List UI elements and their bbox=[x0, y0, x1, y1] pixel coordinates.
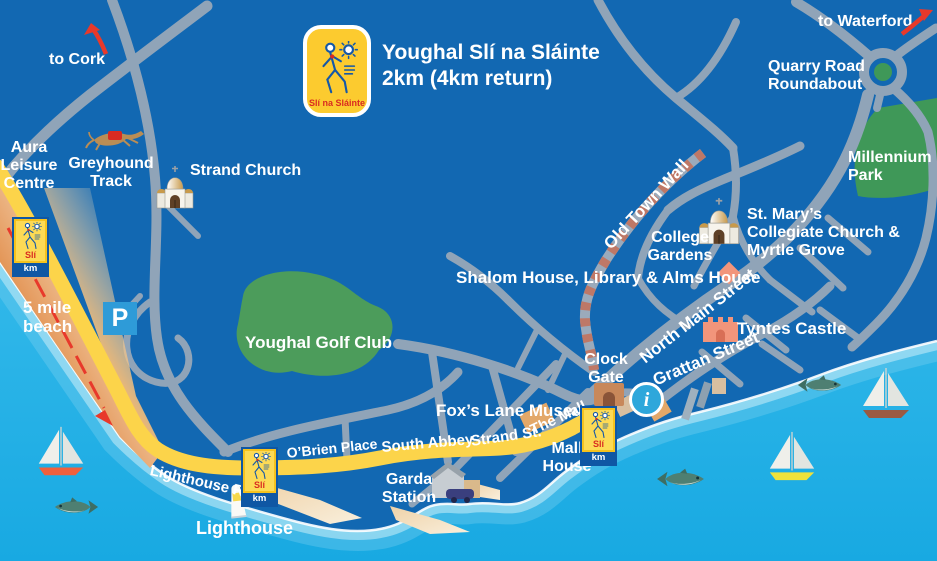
info-icon: i bbox=[629, 382, 664, 417]
map-title-line1: Youghal Slí na Sláinte bbox=[382, 40, 600, 66]
logo-brand-text: Slí na Sláinte bbox=[309, 98, 365, 108]
to-cork-arrow-icon bbox=[82, 22, 112, 58]
st-marys-label: St. Mary’s Collegiate Church & Myrtle Gr… bbox=[747, 206, 900, 260]
greyhound-track-label: Greyhound Track bbox=[64, 155, 158, 191]
college-gardens-label: College Gardens bbox=[646, 229, 714, 265]
youghal-sli-map: Slí na Sláinte Youghal Slí na Sláinte 2k… bbox=[0, 0, 937, 561]
to-waterford-arrow-icon bbox=[899, 7, 935, 37]
shalom-house-label: Shalom House, Library & Alms House bbox=[456, 268, 761, 287]
garda-station-label: Garda Station bbox=[376, 471, 442, 507]
golf-club-label: Youghal Golf Club bbox=[245, 333, 392, 352]
walking-man-icon bbox=[18, 222, 44, 251]
strand-church-label: Strand Church bbox=[190, 162, 301, 180]
walking-man-icon bbox=[586, 411, 612, 440]
sli-na-slainte-logo: Slí na Sláinte bbox=[303, 25, 371, 117]
parking-icon: P bbox=[103, 302, 137, 335]
five-mile-beach-label: 5 mile beach bbox=[23, 298, 72, 336]
lighthouse-label: Lighthouse bbox=[196, 518, 293, 538]
millennium-park-label: Millennium Park bbox=[848, 149, 932, 185]
aura-leisure-centre-label: Aura Leisure Centre bbox=[0, 139, 58, 193]
map-title: Youghal Slí na Sláinte 2km (4km return) bbox=[382, 40, 600, 93]
quarry-roundabout-label: Quarry Road Roundabout bbox=[768, 58, 865, 94]
clock-gate-label: Clock Gate bbox=[577, 351, 635, 387]
sli-km-sign: Slí km bbox=[12, 217, 49, 277]
sli-km-sign: Slí km bbox=[241, 447, 278, 507]
map-distance: 2km (4km return) bbox=[382, 66, 600, 92]
walking-man-icon bbox=[247, 452, 273, 481]
walking-man-icon bbox=[314, 41, 360, 97]
sli-km-sign: Slí km bbox=[580, 406, 617, 466]
